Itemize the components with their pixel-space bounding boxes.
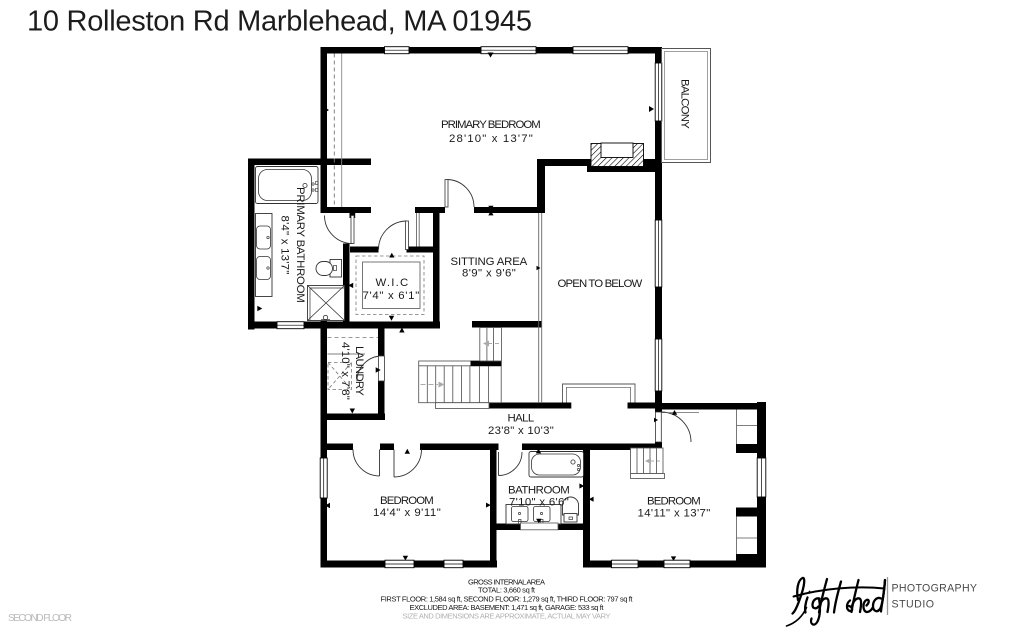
svg-text:PRIMARY BATHROOM: PRIMARY BATHROOM — [294, 187, 306, 303]
svg-text:TOTAL: 3,660 sq ft: TOTAL: 3,660 sq ft — [478, 585, 536, 594]
svg-text:10 Rolleston Rd Marblehead, MA: 10 Rolleston Rd Marblehead, MA 01945 — [27, 6, 532, 38]
svg-text:8'9" x 9'6": 8'9" x 9'6" — [462, 268, 516, 280]
svg-text:BEDROOM: BEDROOM — [380, 495, 434, 507]
svg-text:HALL: HALL — [508, 413, 535, 425]
svg-text:BALCONY: BALCONY — [679, 79, 691, 129]
svg-text:7'10" x 6'6": 7'10" x 6'6" — [509, 497, 569, 509]
svg-text:BEDROOM: BEDROOM — [647, 496, 701, 508]
svg-text:28'10" x 13'7": 28'10" x 13'7" — [449, 133, 533, 145]
svg-text:PRIMARY BEDROOM: PRIMARY BEDROOM — [441, 119, 541, 131]
svg-text:14'11" x 13'7": 14'11" x 13'7" — [638, 508, 711, 520]
svg-text:4'10" x 7'8": 4'10" x 7'8" — [339, 342, 351, 400]
svg-text:OPEN TO BELOW: OPEN TO BELOW — [558, 278, 643, 290]
svg-text:STUDIO: STUDIO — [892, 598, 935, 610]
svg-text:SIZE AND DIMENSIONS ARE APPROX: SIZE AND DIMENSIONS ARE APPROXIMATE, ACT… — [403, 611, 611, 620]
svg-text:8'4" x 13'7": 8'4" x 13'7" — [279, 216, 291, 275]
svg-text:SECOND FLOOR: SECOND FLOOR — [8, 613, 72, 624]
svg-text:SITTING AREA: SITTING AREA — [451, 256, 528, 268]
svg-text:W.I.C: W.I.C — [376, 277, 409, 289]
svg-text:BATHROOM: BATHROOM — [508, 485, 570, 497]
svg-text:PHOTOGRAPHY: PHOTOGRAPHY — [892, 583, 978, 595]
svg-text:LAUNDRY: LAUNDRY — [353, 346, 365, 396]
svg-text:14'4" x 9'11": 14'4" x 9'11" — [373, 507, 441, 519]
svg-text:23'8" x 10'3": 23'8" x 10'3" — [488, 425, 554, 437]
svg-text:7'4" x 6'1": 7'4" x 6'1" — [363, 290, 420, 302]
